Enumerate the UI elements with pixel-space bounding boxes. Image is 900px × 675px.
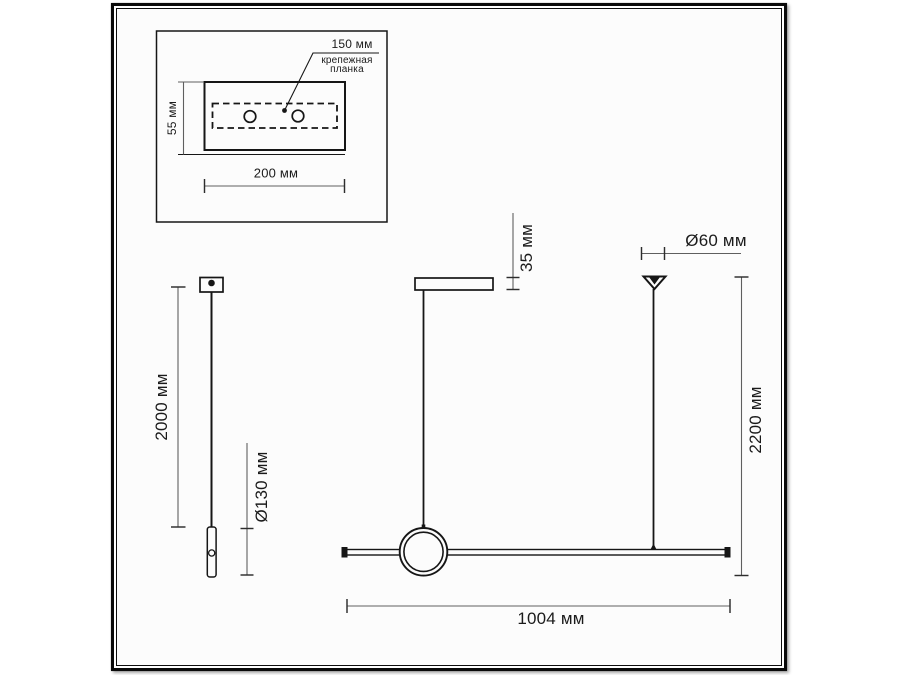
dim-label-canopy-height: 35 мм [517,224,537,272]
dim-label-overall-height: 2200 мм [746,386,766,453]
screenshot-root: 150 мм крепежная планка 55 мм 200 мм 200… [0,0,900,675]
dim-label-grip-length: Ø130 мм [252,451,272,522]
dim-label-canopy-diameter: Ø60 мм [685,231,746,251]
photo-frame [111,3,787,671]
dim-label-cable-length: 2000 мм [152,373,172,440]
dim-label-plate-width: 200 мм [254,166,298,181]
label-mounting-plate: крепежная планка [313,56,381,74]
drawing-paper [116,8,782,666]
dim-label-bar-length: 1004 мм [517,609,584,629]
dim-label-hole-spacing: 150 мм [331,37,372,51]
dim-label-plate-height: 55 мм [165,101,179,135]
